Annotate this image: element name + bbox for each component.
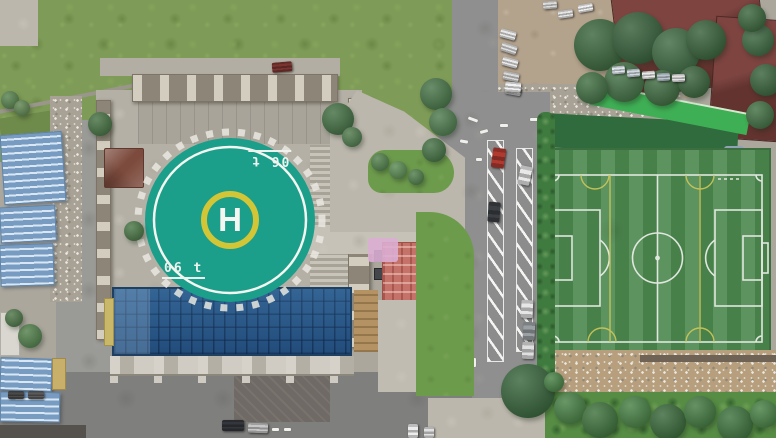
tree xyxy=(371,153,389,171)
tree xyxy=(408,169,424,185)
tree xyxy=(501,364,555,418)
car xyxy=(521,300,534,319)
tree xyxy=(420,78,452,110)
road-marking xyxy=(284,428,291,431)
tree xyxy=(88,112,112,136)
shed-roof xyxy=(0,205,57,244)
car xyxy=(612,65,626,74)
car xyxy=(222,420,244,431)
car xyxy=(28,391,44,399)
road-marking xyxy=(500,124,508,127)
car xyxy=(543,0,558,9)
east-lawn xyxy=(416,212,474,396)
tree xyxy=(619,396,651,428)
south-wall-line xyxy=(640,355,776,362)
tree xyxy=(18,324,42,348)
shed-roof xyxy=(0,131,66,205)
tree xyxy=(422,138,446,162)
north-battlement-wall xyxy=(132,74,338,102)
car xyxy=(272,61,293,73)
dark-roofs-bottom xyxy=(0,425,86,438)
helipad-h-letter: H xyxy=(208,200,252,240)
tree xyxy=(544,372,564,392)
car xyxy=(657,73,670,82)
car xyxy=(408,424,418,438)
tree xyxy=(14,100,30,116)
tree xyxy=(576,72,608,104)
car xyxy=(491,147,507,169)
shed-roof xyxy=(0,243,55,287)
car xyxy=(248,423,268,434)
aerial-photo: H 06 t 06 t xyxy=(0,0,776,438)
tree xyxy=(717,406,753,438)
tree xyxy=(750,400,776,428)
south-parapet xyxy=(110,356,354,376)
roadside-hedge xyxy=(537,112,555,396)
pink-tarp xyxy=(368,238,398,262)
car xyxy=(522,342,535,359)
tree xyxy=(5,309,23,327)
tree xyxy=(124,221,144,241)
tree xyxy=(342,127,362,147)
road-marking xyxy=(476,158,482,161)
car xyxy=(627,68,641,77)
car xyxy=(8,391,24,399)
car xyxy=(424,427,434,438)
corner-patch xyxy=(0,0,38,46)
tree xyxy=(738,4,766,32)
soccer-field-markings xyxy=(543,148,770,352)
roof-ladder-strip xyxy=(104,298,114,346)
car xyxy=(523,322,536,341)
wood-deck xyxy=(354,290,378,352)
shed-roof xyxy=(0,357,53,392)
tree xyxy=(650,404,686,438)
tree xyxy=(684,396,716,428)
helipad-weight-marking-bottom: 06 t xyxy=(162,262,205,279)
tree xyxy=(678,66,710,98)
tree xyxy=(389,161,407,179)
car xyxy=(505,81,522,92)
car xyxy=(487,202,501,223)
tree xyxy=(746,101,774,129)
car xyxy=(642,71,656,80)
tree xyxy=(750,64,776,96)
tree xyxy=(582,402,618,438)
car xyxy=(672,74,685,82)
parapet-pillar-feet xyxy=(110,376,354,383)
helipad-weight-marking-top: 06 t xyxy=(248,150,291,167)
tan-building xyxy=(52,358,66,390)
tree xyxy=(429,108,457,136)
tree xyxy=(686,20,726,60)
road-marking xyxy=(272,428,279,431)
hatched-parking-strip-west xyxy=(487,140,504,362)
